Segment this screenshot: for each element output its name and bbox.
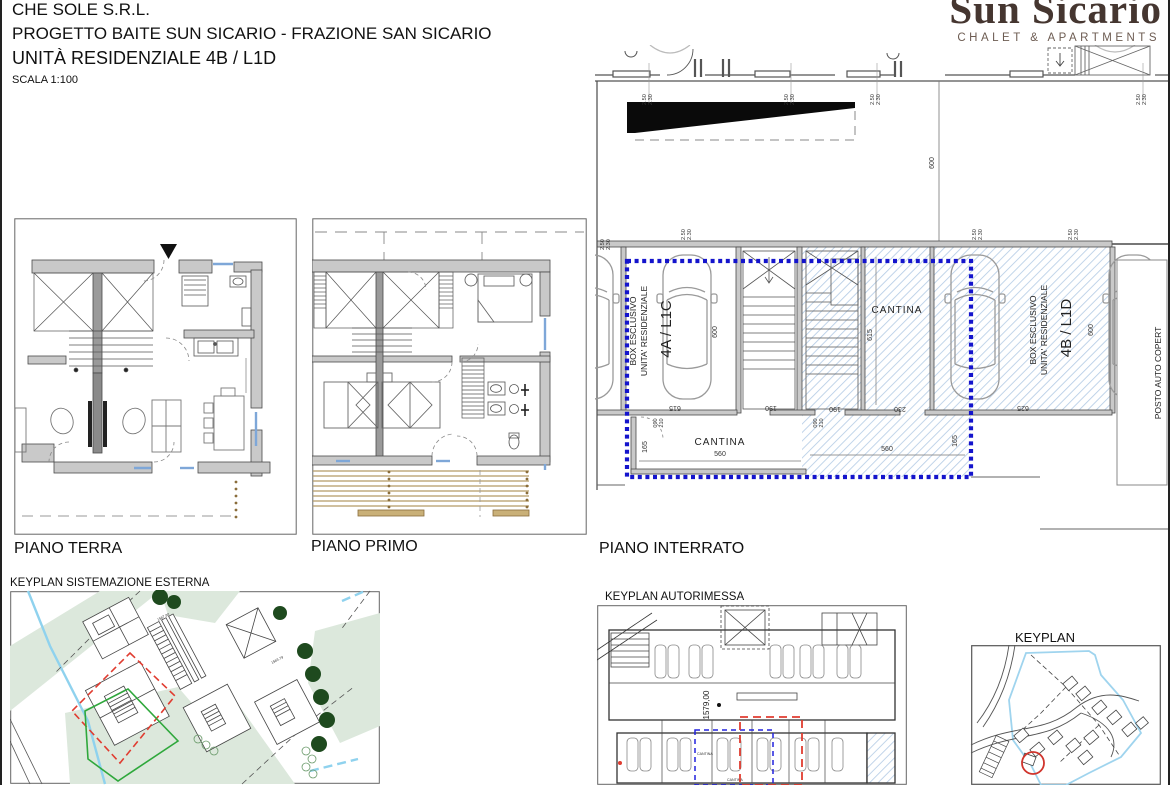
label-piano-terra: PIANO TERRA [14,540,122,558]
ground-furniture [15,358,246,452]
plan-first [312,218,587,535]
svg-text:600: 600 [929,157,936,169]
garage-outline [597,613,895,783]
posto-auto-area: POSTO AUTO COPERT [1117,260,1167,485]
north-marker-icon [160,244,177,259]
drawing-sheet: CHE SOLE S.R.L. PROGETTO BAITE SUN SICAR… [0,0,1170,785]
keyplan-overview [970,645,1162,785]
svg-text:2.30: 2.30 [1142,94,1148,105]
dim-600-aisle: 600 [929,81,939,245]
svg-text:2.30: 2.30 [978,229,984,240]
cantina-upper-label: CANTINA [872,305,923,316]
ground-deck-dots [235,481,238,519]
ground-bath-kitchen [182,276,251,356]
basement-stairs-1 [743,251,795,409]
roof-overhang-dashed [315,232,584,260]
svg-text:POSTO AUTO COPERT: POSTO AUTO COPERT [1153,327,1163,420]
svg-text:165: 165 [642,441,649,453]
micro-cantina-1: CANTINA [697,752,713,756]
height-labels: 2.50 2.30 2.50 2.30 2.50 2.30 2.50 2.30 … [600,63,1148,250]
first-bedroom-top [465,274,532,322]
svg-text:2.30: 2.30 [876,94,882,105]
svg-text:2.30: 2.30 [606,239,612,250]
first-stairs [314,272,453,352]
keyplan-esterna: 1587.90 1583.79 [10,590,380,785]
unit-title: UNITÀ RESIDENZIALE 4B / L1D [12,46,492,72]
logo-tagline: CHALET & APARTMENTS [949,32,1160,44]
svg-text:210: 210 [819,418,825,427]
project-title: PROGETTO BAITE SUN SICARIO - FRAZIONE SA… [12,22,492,46]
svg-text:2.30: 2.30 [687,229,693,240]
svg-text:230: 230 [894,405,906,412]
svg-text:2.30: 2.30 [790,94,796,105]
keyplan-autorimessa: 1579,00 CANTINA CANTINA [597,605,907,785]
balcony-deck [313,470,529,517]
svg-text:4B / L1D: 4B / L1D [1058,299,1075,358]
overview-hatch-strip [979,735,1009,777]
first-walls [312,260,550,465]
red-marker-dot [618,761,622,765]
first-windows [336,318,545,470]
svg-text:UNITA' RESIDENZIALE: UNITA' RESIDENZIALE [639,286,649,377]
brand-logo: Sun Sicario CHALET & APARTMENTS [949,0,1162,44]
svg-text:165: 165 [952,435,959,447]
label-piano-interrato: PIANO INTERRATO [599,540,744,558]
first-bathroom [488,382,529,449]
svg-text:190: 190 [829,405,841,412]
label-piano-primo: PIANO PRIMO [311,538,418,556]
svg-text:560: 560 [881,446,893,453]
plan-basement: 600 [595,45,1170,535]
svg-text:560: 560 [714,451,726,458]
garage-elevation: 1579,00 [702,690,711,719]
svg-text:600: 600 [712,326,719,338]
corridor-walls [595,45,1170,81]
svg-text:615: 615 [867,329,874,341]
highlight-red-dashed [740,717,802,785]
cantina-lower-label: CANTINA [695,437,746,448]
first-wardrobe [462,358,484,418]
outer-lines [597,477,1170,529]
title-block: CHE SOLE S.R.L. PROGETTO BAITE SUN SICAR… [12,0,492,88]
micro-cantina-2: CANTINA [727,778,743,782]
stairwell-top-right [1048,46,1150,75]
garage-structures [609,606,895,783]
label-keyplan-esterna: KEYPLAN SISTEMAZIONE ESTERNA [10,577,209,589]
svg-text:190: 190 [765,404,777,411]
company-name: CHE SOLE S.R.L. [12,0,492,22]
svg-text:BOX ESCLUSIVO: BOX ESCLUSIVO [1028,295,1038,364]
logo-name: Sun Sicario [949,0,1162,30]
svg-text:615: 615 [669,404,681,411]
svg-text:600: 600 [1088,324,1095,336]
ground-walls [22,260,270,476]
car-icon [595,255,619,399]
svg-text:4A / L1C: 4A / L1C [658,300,675,358]
label-keyplan-autorimessa: KEYPLAN AUTORIMESSA [605,591,744,603]
svg-text:210: 210 [659,418,665,427]
plan-ground [14,218,297,535]
garage-ramp [627,102,855,140]
svg-text:2.30: 2.30 [648,94,654,105]
scale-note: SCALA 1:100 [12,73,492,89]
ground-doors [49,260,189,462]
site-elev-2: 1583.79 [271,655,284,665]
svg-text:BOX ESCLUSIVO: BOX ESCLUSIVO [628,296,638,365]
svg-text:625: 625 [1017,404,1029,411]
label-keyplan-overview: KEYPLAN [1015,630,1075,645]
green-areas [10,591,380,784]
svg-text:UNITA' RESIDENZIALE: UNITA' RESIDENZIALE [1039,285,1049,376]
svg-text:2.30: 2.30 [1074,229,1080,240]
